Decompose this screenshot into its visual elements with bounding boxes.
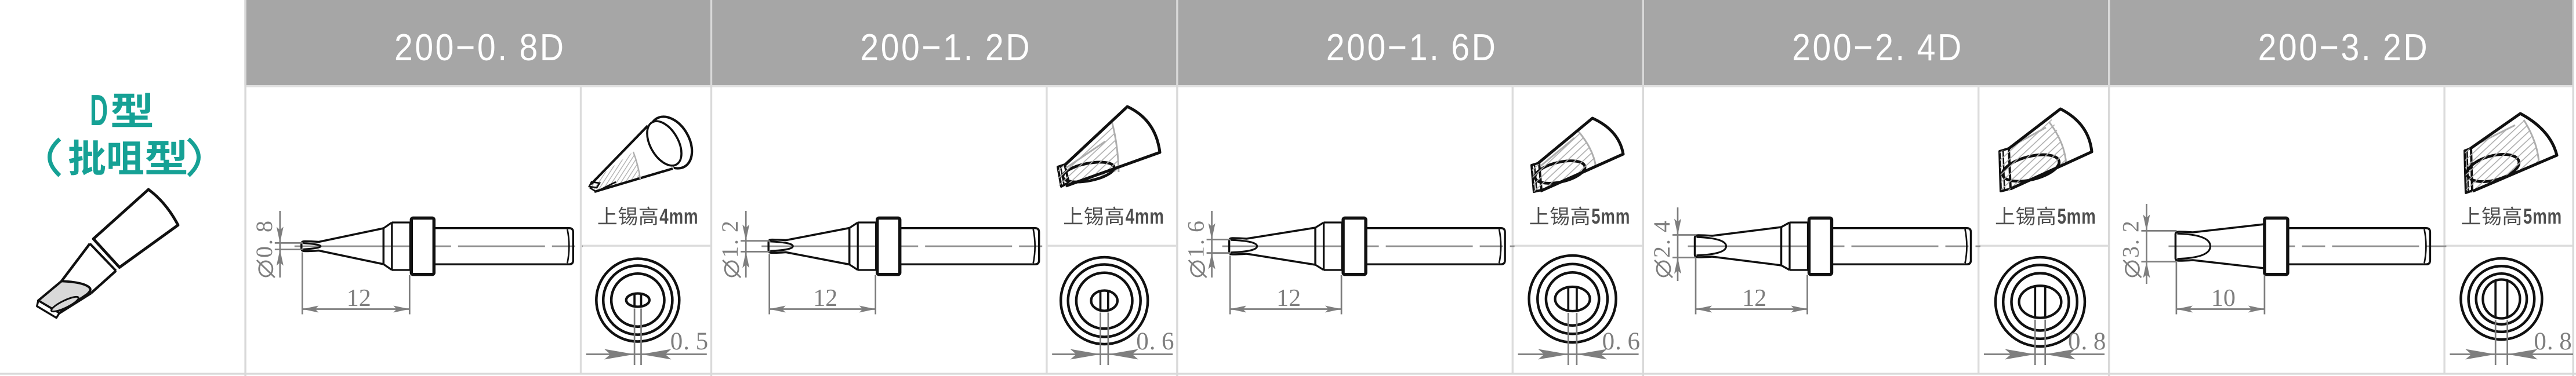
svg-text:4mm: 4mm [1126,204,1164,228]
svg-text:10: 10 [2211,285,2236,312]
svg-text:12: 12 [347,285,371,312]
svg-text:200−1. 2D: 200−1. 2D [860,27,1032,68]
svg-text:200−3. 2D: 200−3. 2D [2258,27,2430,68]
svg-text:0. 6: 0. 6 [1602,328,1641,355]
svg-text:12: 12 [1276,285,1301,312]
svg-text:12: 12 [813,285,837,312]
svg-text:5mm: 5mm [2523,204,2562,228]
svg-text:200−0. 8D: 200−0. 8D [394,27,566,68]
svg-text:12: 12 [1742,285,1766,312]
svg-text:5mm: 5mm [1591,204,1630,228]
svg-text:5mm: 5mm [2058,204,2096,228]
svg-text:1. 2: 1. 2 [717,220,743,258]
svg-text:3. 2: 3. 2 [2117,220,2143,258]
svg-text:0. 8: 0. 8 [2068,328,2106,355]
svg-text:0. 6: 0. 6 [1136,328,1174,355]
svg-text:4mm: 4mm [659,204,698,228]
svg-text:0. 8: 0. 8 [251,220,277,258]
svg-text:200−2. 4D: 200−2. 4D [1792,27,1964,68]
svg-text:0. 8: 0. 8 [2534,328,2572,355]
svg-text:2. 4: 2. 4 [1649,220,1675,258]
svg-text:200−1. 6D: 200−1. 6D [1326,27,1498,68]
svg-text:0. 5: 0. 5 [670,328,709,355]
svg-text:D: D [90,86,108,134]
svg-text:1. 6: 1. 6 [1183,220,1209,258]
